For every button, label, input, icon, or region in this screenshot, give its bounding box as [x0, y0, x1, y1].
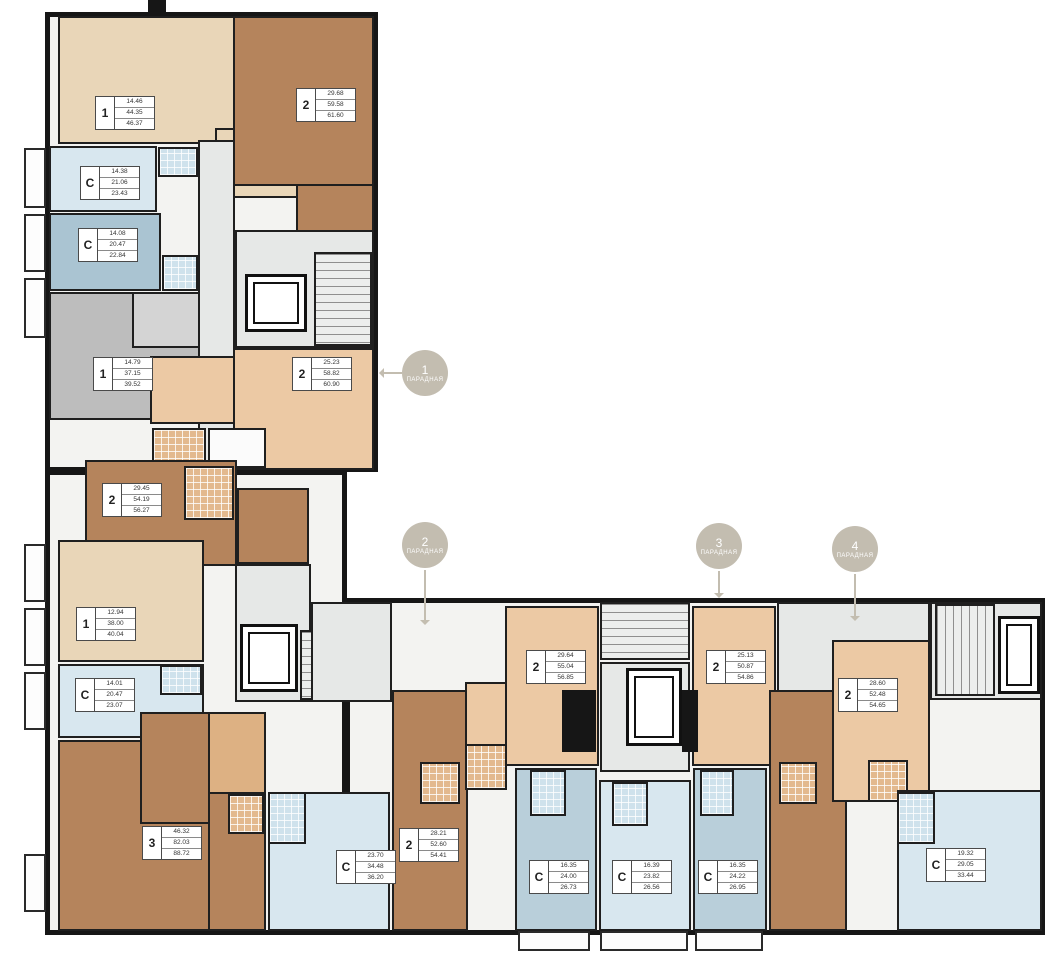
unit-areas: 14.7937.1539.52 — [113, 358, 152, 390]
unit-areas: 29.6859.5861.60 — [316, 89, 355, 121]
unit-area-value: 52.48 — [858, 690, 897, 701]
balcony — [24, 278, 46, 338]
unit-type: 2 — [103, 484, 122, 516]
balcony — [24, 214, 46, 272]
unit-area-value: 22.84 — [98, 251, 137, 261]
unit-area-value: 40.04 — [96, 630, 135, 640]
unit-label[interactable]: 225.1350.8754.86 — [706, 650, 766, 684]
arrow-left-icon — [384, 372, 402, 374]
bay-window — [518, 931, 590, 951]
balcony — [24, 544, 46, 602]
unit-label[interactable]: 114.7937.1539.52 — [93, 357, 153, 391]
unit-areas: 12.9438.0040.04 — [96, 608, 135, 640]
arrow-down-icon — [718, 571, 720, 593]
room-2room-tan-hall — [150, 356, 235, 424]
unit-area-value: 50.87 — [726, 662, 765, 673]
unit-type: 2 — [707, 651, 726, 683]
unit-area-value: 61.60 — [316, 111, 355, 121]
unit-area-value: 58.82 — [312, 369, 351, 380]
entrance-label: ПАРАДНАЯ — [837, 553, 874, 559]
unit-type: С — [699, 861, 718, 893]
arrow-down-icon — [424, 570, 426, 620]
unit-area-value: 24.22 — [718, 872, 757, 883]
unit-area-value: 14.08 — [98, 229, 137, 240]
elevator — [626, 668, 682, 746]
unit-area-value: 20.47 — [95, 690, 134, 701]
bathroom — [184, 466, 234, 520]
unit-area-value: 56.85 — [546, 673, 585, 683]
unit-label[interactable]: С14.0120.4723.07 — [75, 678, 135, 712]
unit-label[interactable]: С23.7034.4836.20 — [336, 850, 396, 884]
unit-label[interactable]: С16.3524.0026.73 — [529, 860, 589, 894]
arrow-down-head-icon — [714, 593, 724, 603]
unit-area-value: 28.21 — [419, 829, 458, 840]
unit-label[interactable]: С16.3923.8226.56 — [612, 860, 672, 894]
unit-area-value: 52.60 — [419, 840, 458, 851]
unit-area-value: 28.60 — [858, 679, 897, 690]
entrance-marker-3[interactable]: 3ПАРАДНАЯ — [696, 523, 742, 569]
unit-area-value: 20.47 — [98, 240, 137, 251]
room-1room-tan — [58, 540, 204, 662]
entrance-label: ПАРАДНАЯ — [407, 549, 444, 555]
elevator — [240, 624, 298, 692]
unit-area-value: 29.05 — [946, 860, 985, 871]
unit-area-value: 23.70 — [356, 851, 395, 862]
entrance-number: 1 — [422, 364, 429, 377]
unit-label[interactable]: 112.9438.0040.04 — [76, 607, 136, 641]
entrance-number: 4 — [852, 540, 859, 553]
unit-area-value: 14.01 — [95, 679, 134, 690]
bathroom — [700, 770, 734, 816]
unit-type: С — [81, 167, 100, 199]
unit-areas: 25.2358.8260.90 — [312, 358, 351, 390]
staircase — [600, 602, 690, 660]
unit-areas: 46.3282.0388.72 — [162, 827, 201, 859]
unit-area-value: 25.23 — [312, 358, 351, 369]
staircase — [935, 604, 995, 696]
room-2room-brown — [392, 690, 468, 931]
unit-areas: 14.0820.4722.84 — [98, 229, 137, 261]
room-2room-brown — [237, 488, 309, 564]
unit-area-value: 12.94 — [96, 608, 135, 619]
unit-areas: 25.1350.8754.86 — [726, 651, 765, 683]
bathroom — [897, 792, 935, 844]
bathroom — [612, 782, 648, 826]
room-2room-tan — [692, 606, 776, 766]
unit-area-value: 34.48 — [356, 862, 395, 873]
floor-plan: 114.4644.3546.37 229.6859.5861.60 С14.38… — [0, 0, 1059, 960]
unit-areas: 16.3923.8226.56 — [632, 861, 671, 893]
balcony — [24, 608, 46, 666]
unit-area-value: 36.20 — [356, 873, 395, 883]
bathroom — [158, 147, 198, 177]
bathroom — [465, 744, 507, 790]
bay-window — [600, 931, 688, 951]
unit-label[interactable]: 229.6859.5861.60 — [296, 88, 356, 122]
unit-type: С — [613, 861, 632, 893]
unit-label[interactable]: 114.4644.3546.37 — [95, 96, 155, 130]
unit-area-value: 26.95 — [718, 883, 757, 893]
unit-area-value: 39.52 — [113, 380, 152, 390]
bathroom — [228, 794, 264, 834]
unit-area-value: 14.46 — [115, 97, 154, 108]
unit-area-value: 88.72 — [162, 849, 201, 859]
unit-area-value: 54.65 — [858, 701, 897, 711]
balcony — [24, 854, 46, 912]
unit-area-value: 25.13 — [726, 651, 765, 662]
elevator — [245, 274, 307, 332]
unit-label[interactable]: С19.3229.0533.44 — [926, 848, 986, 882]
unit-label[interactable]: 228.6052.4854.65 — [838, 678, 898, 712]
shaft — [148, 0, 166, 14]
unit-label[interactable]: С14.0820.4722.84 — [78, 228, 138, 262]
corridor — [311, 602, 392, 702]
entrance-marker-4[interactable]: 4ПАРАДНАЯ — [832, 526, 878, 572]
unit-area-value: 16.35 — [549, 861, 588, 872]
arrow-left-head-icon — [374, 368, 384, 378]
balcony — [24, 672, 46, 730]
unit-area-value: 54.41 — [419, 851, 458, 861]
unit-type: С — [79, 229, 98, 261]
unit-area-value: 59.58 — [316, 100, 355, 111]
unit-area-value: 46.37 — [115, 119, 154, 129]
entrance-marker-1[interactable]: 1ПАРАДНАЯ — [402, 350, 448, 396]
unit-areas: 14.0120.4723.07 — [95, 679, 134, 711]
arrow-down-icon — [854, 574, 856, 616]
unit-area-value: 54.86 — [726, 673, 765, 683]
bathroom — [162, 255, 198, 291]
unit-label[interactable]: 229.4554.1956.27 — [102, 483, 162, 517]
unit-area-value: 55.04 — [546, 662, 585, 673]
unit-area-value: 60.90 — [312, 380, 351, 390]
elevator — [998, 616, 1040, 694]
unit-area-value: 19.32 — [946, 849, 985, 860]
entrance-marker-2[interactable]: 2ПАРАДНАЯ — [402, 522, 448, 568]
staircase — [314, 252, 372, 346]
unit-area-value: 26.73 — [549, 883, 588, 893]
unit-area-value: 23.43 — [100, 189, 139, 199]
unit-area-value: 29.45 — [122, 484, 161, 495]
unit-label[interactable]: 225.2358.8260.90 — [292, 357, 352, 391]
unit-area-value: 82.03 — [162, 838, 201, 849]
entrance-label: ПАРАДНАЯ — [407, 377, 444, 383]
unit-label[interactable]: С16.3524.2226.95 — [698, 860, 758, 894]
bathroom — [779, 762, 817, 804]
unit-type: С — [76, 679, 95, 711]
shaft — [562, 690, 596, 752]
unit-area-value: 29.64 — [546, 651, 585, 662]
unit-areas: 29.6455.0456.85 — [546, 651, 585, 683]
bathroom — [530, 770, 566, 816]
unit-areas: 14.4644.3546.37 — [115, 97, 154, 129]
unit-area-value: 44.35 — [115, 108, 154, 119]
unit-type: 2 — [839, 679, 858, 711]
unit-area-value: 16.39 — [632, 861, 671, 872]
unit-area-value: 24.00 — [549, 872, 588, 883]
unit-type: 2 — [293, 358, 312, 390]
bathroom — [268, 792, 306, 844]
unit-areas: 16.3524.0026.73 — [549, 861, 588, 893]
bathroom — [420, 762, 460, 804]
unit-type: 2 — [297, 89, 316, 121]
unit-area-value: 14.79 — [113, 358, 152, 369]
unit-area-value: 54.19 — [122, 495, 161, 506]
unit-type: 1 — [77, 608, 96, 640]
unit-areas: 16.3524.2226.95 — [718, 861, 757, 893]
unit-areas: 29.4554.1956.27 — [122, 484, 161, 516]
bay-window — [695, 931, 763, 951]
unit-areas: 28.2152.6054.41 — [419, 829, 458, 861]
unit-label[interactable]: 346.3282.0388.72 — [142, 826, 202, 860]
unit-area-value: 46.32 — [162, 827, 201, 838]
shaft — [682, 690, 698, 752]
unit-area-value: 56.27 — [122, 506, 161, 516]
unit-type: С — [927, 849, 946, 881]
unit-type: 1 — [94, 358, 113, 390]
unit-area-value: 38.00 — [96, 619, 135, 630]
unit-area-value: 29.68 — [316, 89, 355, 100]
unit-type: С — [530, 861, 549, 893]
unit-areas: 14.3821.0623.43 — [100, 167, 139, 199]
room-3room-hall — [208, 712, 266, 794]
bathroom — [160, 665, 202, 695]
unit-areas: 19.3229.0533.44 — [946, 849, 985, 881]
unit-type: 2 — [527, 651, 546, 683]
unit-label[interactable]: С14.3821.0623.43 — [80, 166, 140, 200]
arrow-down-head-icon — [850, 616, 860, 626]
unit-type: 3 — [143, 827, 162, 859]
unit-area-value: 33.44 — [946, 871, 985, 881]
unit-label[interactable]: 228.2152.6054.41 — [399, 828, 459, 862]
unit-type: С — [337, 851, 356, 883]
unit-areas: 28.6052.4854.65 — [858, 679, 897, 711]
unit-area-value: 16.35 — [718, 861, 757, 872]
arrow-down-head-icon — [420, 620, 430, 630]
unit-label[interactable]: 229.6455.0456.85 — [526, 650, 586, 684]
entrance-number: 2 — [422, 536, 429, 549]
unit-area-value: 21.06 — [100, 178, 139, 189]
unit-area-value: 26.56 — [632, 883, 671, 893]
unit-areas: 23.7034.4836.20 — [356, 851, 395, 883]
entrance-label: ПАРАДНАЯ — [701, 550, 738, 556]
balcony — [24, 148, 46, 208]
entrance-number: 3 — [716, 537, 723, 550]
unit-area-value: 23.07 — [95, 701, 134, 711]
unit-area-value: 37.15 — [113, 369, 152, 380]
unit-area-value: 23.82 — [632, 872, 671, 883]
unit-area-value: 14.38 — [100, 167, 139, 178]
unit-type: 2 — [400, 829, 419, 861]
unit-type: 1 — [96, 97, 115, 129]
